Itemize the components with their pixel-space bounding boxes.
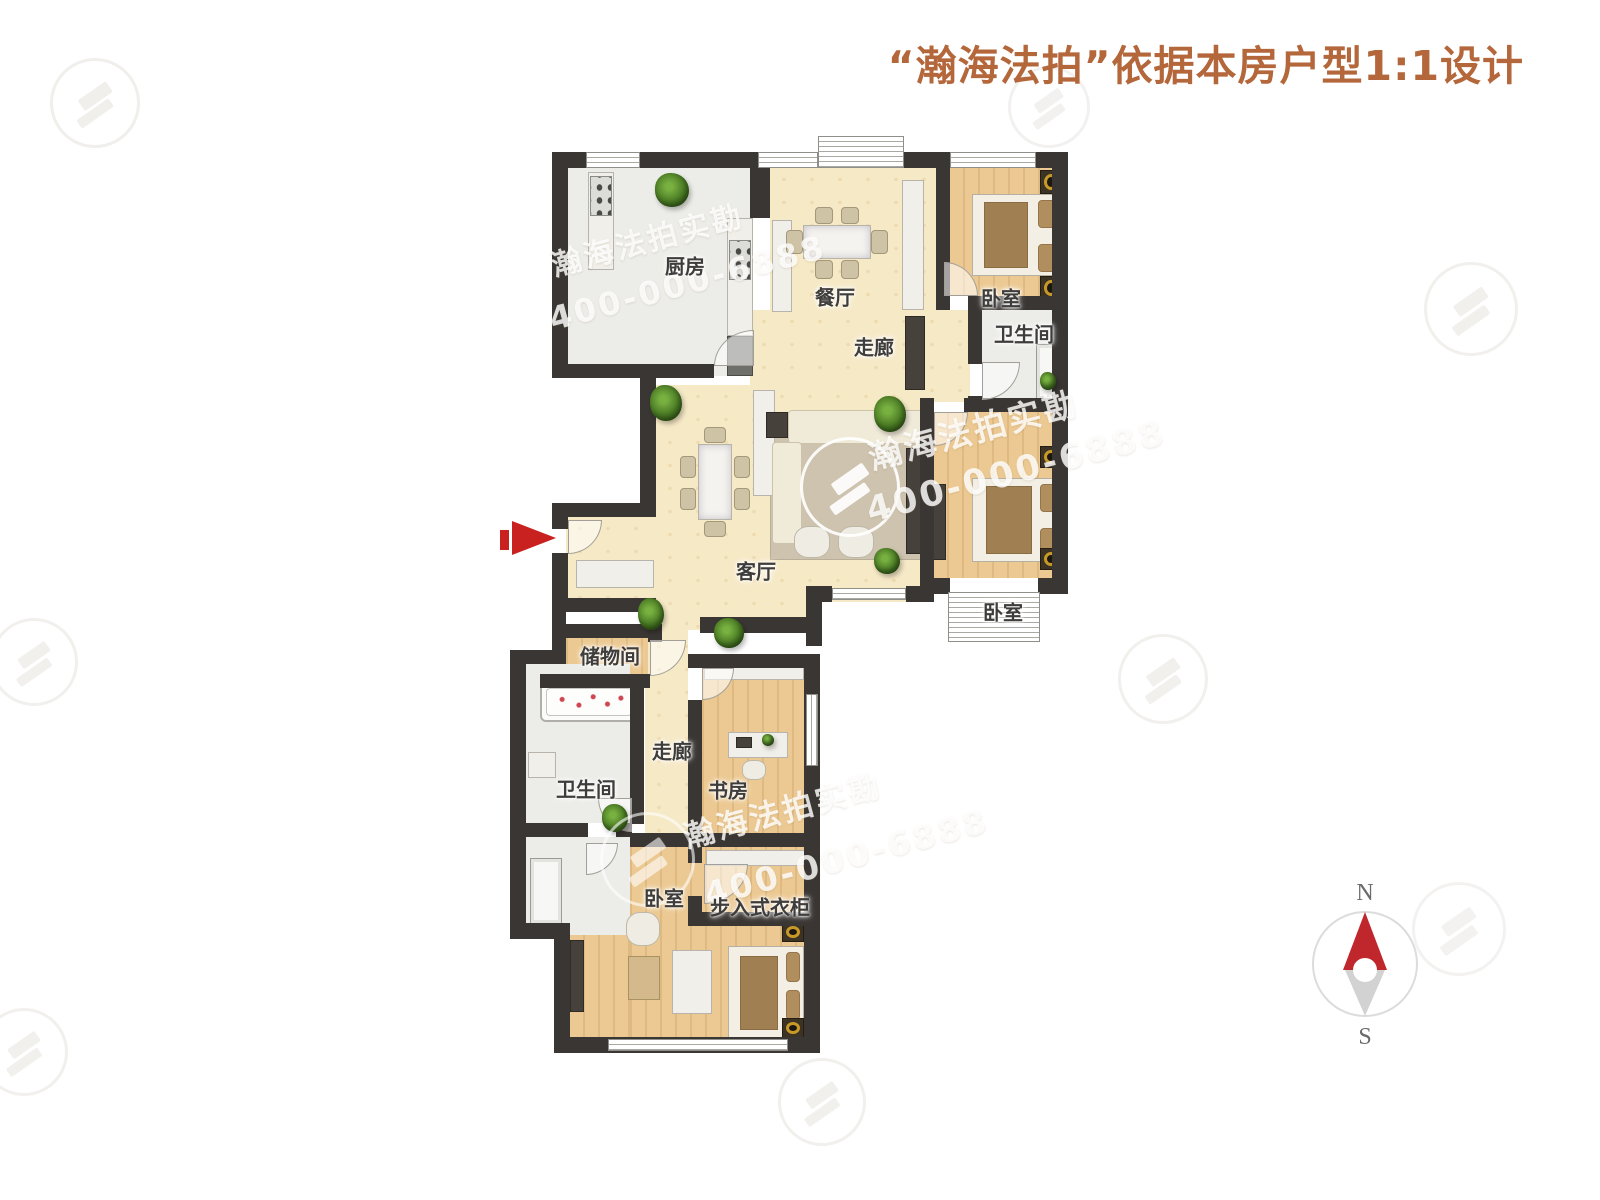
wall-segment — [554, 923, 570, 1049]
dresser — [672, 950, 712, 1014]
wall-segment — [630, 674, 644, 824]
armchair — [794, 526, 830, 558]
side-table — [766, 412, 788, 438]
plant-icon — [650, 385, 682, 421]
room-label-bedroom-s: 卧室 — [644, 883, 684, 912]
room-label-living: 客厅 — [736, 556, 776, 585]
page: { "title": "“瀚海法拍”依据本房户型1:1设计", "rooms":… — [0, 0, 1600, 1200]
bay-window — [818, 136, 904, 168]
plant-icon — [714, 618, 744, 648]
wall-segment — [968, 310, 982, 364]
window — [806, 694, 818, 766]
washbasin — [528, 752, 556, 778]
dining-cabinet — [902, 180, 924, 310]
window — [832, 588, 906, 600]
compass-south-label: S — [1350, 1024, 1380, 1051]
room-label-closet: 步入式衣柜 — [710, 892, 810, 921]
wall-segment — [552, 553, 568, 600]
dining-chair — [841, 260, 859, 279]
entrance-arrow-bar — [500, 530, 509, 550]
living-chair — [734, 456, 750, 478]
ottoman — [626, 912, 660, 946]
outside-patch — [822, 602, 920, 632]
laptop — [736, 737, 752, 748]
room-label-corridor-lower: 走廊 — [652, 736, 692, 765]
background-logo-watermark — [50, 58, 140, 148]
room-label-kitchen: 厨房 — [665, 251, 705, 280]
wall-segment — [510, 823, 588, 837]
compass-icon — [1303, 904, 1427, 1024]
window — [608, 1039, 788, 1051]
entrance-arrow-icon — [512, 521, 556, 555]
living-chair — [680, 488, 696, 510]
bed-pillow — [786, 990, 800, 1020]
dining-chair — [815, 207, 833, 224]
wall-segment — [510, 923, 570, 939]
tv-cabinet — [570, 940, 584, 1012]
wall-segment — [552, 364, 714, 378]
bed-pillow — [786, 952, 800, 982]
plant-icon — [655, 173, 689, 207]
dining-chair — [841, 207, 859, 224]
wall-segment — [552, 624, 652, 638]
plant-icon — [874, 548, 900, 574]
background-logo-watermark — [778, 1058, 866, 1146]
wall-segment — [1038, 578, 1068, 594]
background-logo-watermark — [1118, 634, 1208, 724]
room-label-study: 书房 — [708, 775, 748, 804]
shower-stall — [530, 858, 562, 924]
living-table — [698, 444, 732, 520]
bed-blanket — [740, 956, 778, 1030]
window — [950, 152, 1036, 168]
living-chair — [734, 488, 750, 510]
wall-segment — [936, 296, 946, 310]
small-table — [628, 956, 660, 1000]
kitchen-stove — [590, 176, 612, 216]
wall-segment — [806, 586, 822, 646]
window — [758, 152, 818, 168]
wall-segment — [688, 896, 702, 912]
background-logo-watermark — [1424, 262, 1518, 356]
room-label-bedroom-e: 卧室 — [983, 597, 1023, 626]
nightstand-lamp — [782, 1018, 804, 1038]
dining-chair — [871, 230, 888, 254]
wall-segment — [1052, 152, 1068, 592]
room-label-bathroom-ne: 卫生间 — [994, 319, 1054, 348]
plant-icon — [762, 734, 774, 746]
room-label-dining: 餐厅 — [815, 282, 855, 311]
wall-segment — [510, 650, 526, 938]
room-label-bedroom-ne: 卧室 — [981, 283, 1021, 312]
living-chair — [704, 521, 726, 537]
window — [586, 152, 640, 168]
page-title: “瀚海法拍”依据本房户型1:1设计 — [888, 32, 1524, 92]
corridor-cabinet — [905, 316, 925, 390]
shoe-cabinet — [576, 560, 654, 588]
room-label-bathroom-w: 卫生间 — [556, 774, 616, 803]
living-chair — [680, 456, 696, 478]
wall-segment — [688, 654, 818, 668]
bed-blanket — [984, 202, 1028, 268]
room-label-storage: 储物间 — [580, 641, 640, 670]
compass-north-label: N — [1350, 880, 1380, 907]
wall-segment — [906, 586, 934, 602]
bathtub — [540, 682, 638, 722]
living-chair — [704, 427, 726, 443]
room-label-corridor-upper: 走廊 — [854, 332, 894, 361]
plant-icon — [638, 598, 664, 630]
